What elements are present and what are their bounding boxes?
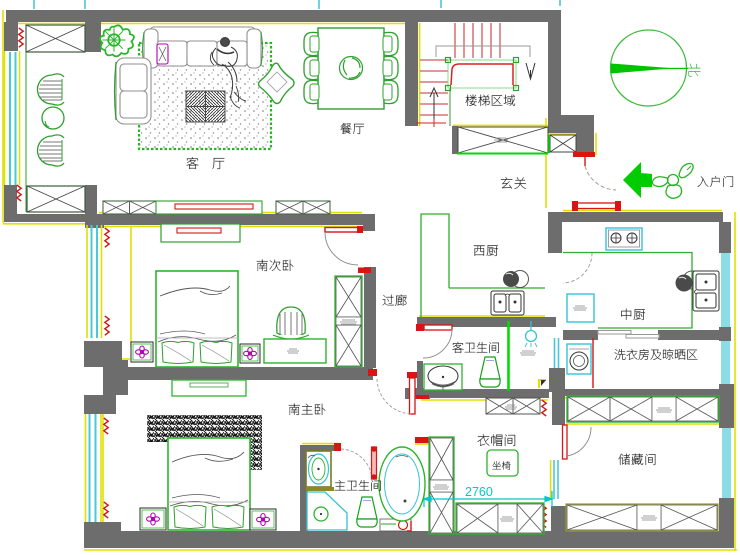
svg-text:2760: 2760 bbox=[465, 485, 493, 499]
